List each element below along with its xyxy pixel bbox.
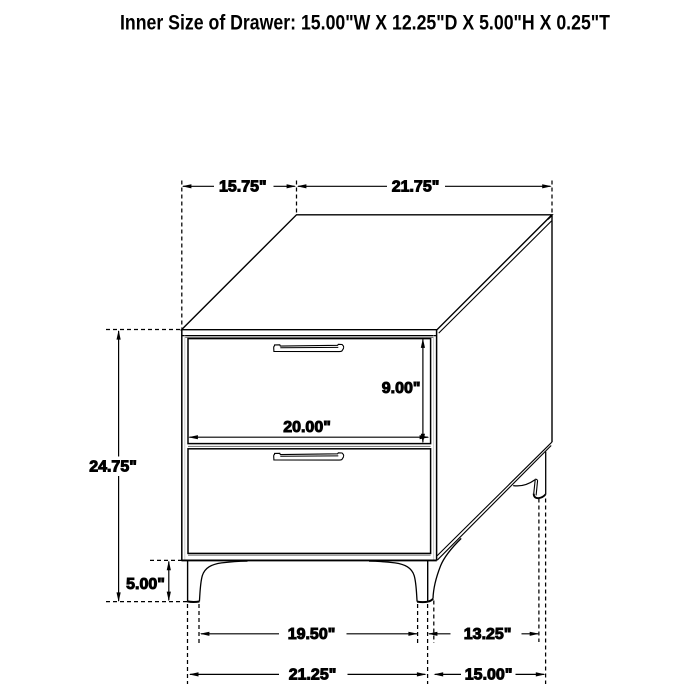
svg-text:21.25": 21.25" — [289, 667, 337, 684]
svg-text:13.25": 13.25" — [464, 626, 512, 643]
svg-text:15.00": 15.00" — [465, 667, 513, 684]
svg-text:21.75": 21.75" — [392, 178, 440, 195]
svg-text:24.75": 24.75" — [89, 459, 137, 476]
svg-text:20.00": 20.00" — [283, 419, 331, 436]
svg-text:5.00": 5.00" — [126, 576, 165, 593]
svg-text:15.75": 15.75" — [219, 178, 267, 195]
svg-text:Inner Size of Drawer: 15.00"W: Inner Size of Drawer: 15.00"W X 12.25"D … — [120, 11, 610, 35]
svg-text:9.00": 9.00" — [382, 380, 421, 397]
svg-text:19.50": 19.50" — [288, 626, 336, 643]
